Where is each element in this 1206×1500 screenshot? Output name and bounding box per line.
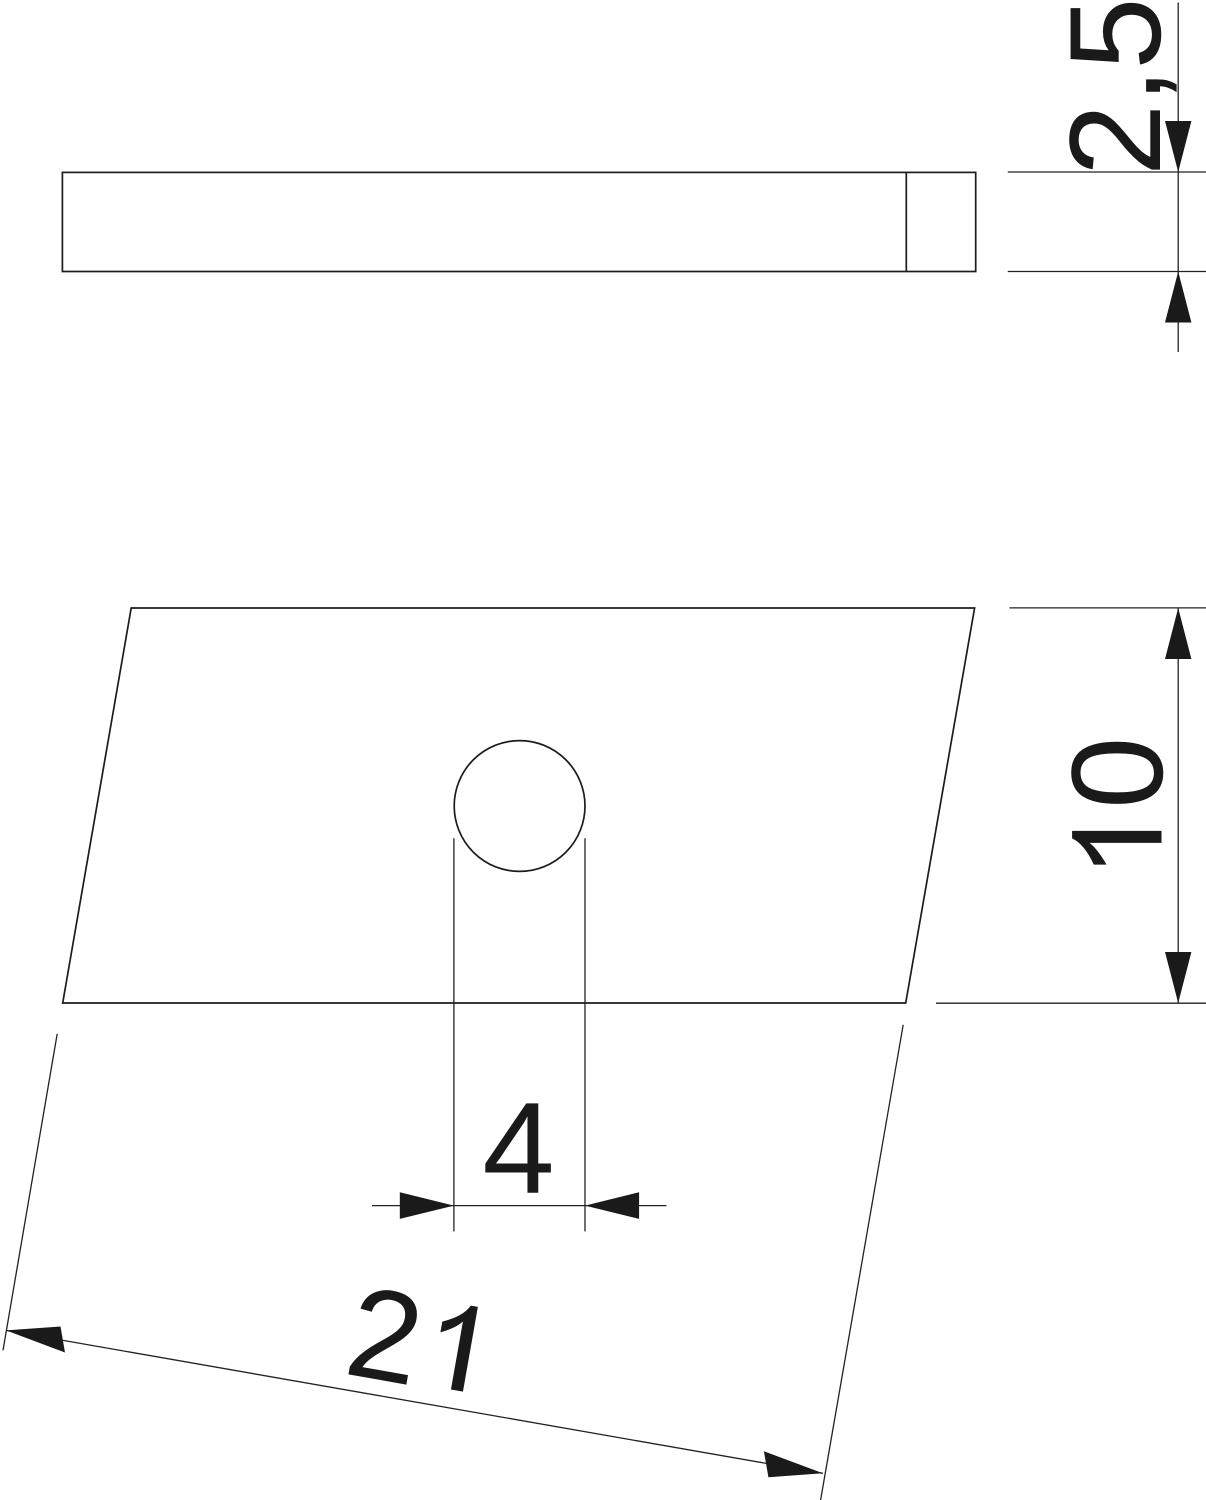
svg-text:0: 0 bbox=[1044, 737, 1190, 809]
svg-text:2,5: 2,5 bbox=[1042, 0, 1188, 176]
svg-text:2: 2 bbox=[337, 1259, 433, 1413]
svg-text:4: 4 bbox=[482, 1075, 554, 1221]
